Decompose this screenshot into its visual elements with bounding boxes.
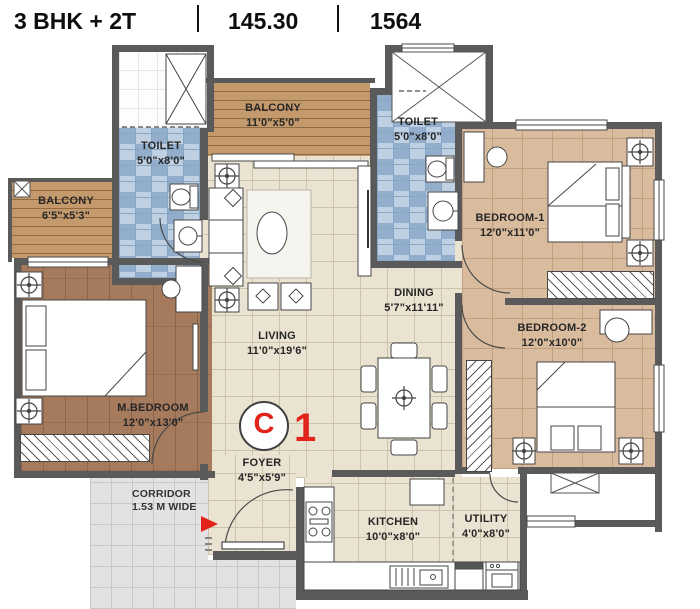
room-label-toilet-right: TOILET 5'0"x8'0" xyxy=(368,115,468,145)
room-dims: 11'0"x19'6" xyxy=(217,344,337,359)
stove-panel xyxy=(310,519,328,524)
appliance-panel xyxy=(455,562,483,569)
fridge xyxy=(410,479,444,505)
room-label-corridor: CORRIDOR 1.53 M WIDE xyxy=(132,488,242,514)
pillow xyxy=(578,426,601,450)
room-name: M.BEDROOM xyxy=(83,401,223,416)
stool xyxy=(162,280,180,298)
room-name: BALCONY xyxy=(203,101,343,116)
room-name: BEDROOM-1 xyxy=(440,211,580,226)
dining-chair xyxy=(391,343,417,358)
room-name: CORRIDOR xyxy=(132,488,242,501)
pillow xyxy=(26,350,46,390)
room-name: TOILET xyxy=(368,115,468,130)
room-name: LIVING xyxy=(217,329,337,344)
room-name: KITCHEN xyxy=(333,515,453,530)
room-name: DINING xyxy=(354,286,474,301)
room-label-master-bedroom: M.BEDROOM 12'0"x13'0" xyxy=(83,401,223,431)
bedroom-1-furniture xyxy=(464,132,653,266)
dining-chair xyxy=(432,366,447,392)
pillow xyxy=(606,204,619,236)
room-dims: 12'0"x11'0" xyxy=(440,226,580,241)
pillow xyxy=(606,168,619,200)
corridor-tick xyxy=(205,543,212,545)
basin-bowl xyxy=(179,227,197,245)
dining-furniture xyxy=(361,343,447,455)
headboard xyxy=(622,166,630,238)
dining-chair xyxy=(432,403,447,429)
room-name: BALCONY xyxy=(16,194,116,209)
washer-door xyxy=(492,574,512,587)
room-label-balcony-top: BALCONY 11'0"x5'0" xyxy=(203,101,343,131)
room-dims: 10'0"x8'0" xyxy=(333,530,453,545)
room-name: TOILET xyxy=(111,139,211,154)
room-dims: 12'0"x10'0" xyxy=(482,336,622,351)
room-dims: 4'5"x5'9" xyxy=(202,471,322,486)
room-dims: 5'0"x8'0" xyxy=(111,154,211,169)
room-dims: 5'0"x8'0" xyxy=(368,130,468,145)
coffee-table xyxy=(257,212,287,254)
room-label-balcony-left: BALCONY 6'5"x5'3" xyxy=(16,194,116,224)
room-label-toilet-left: TOILET 5'0"x8'0" xyxy=(111,139,211,169)
room-label-foyer: FOYER 4'5"x5'9" xyxy=(202,456,322,486)
wardrobe-bedroom-1 xyxy=(547,271,654,299)
tv-unit xyxy=(193,324,198,370)
room-label-bedroom-1: BEDROOM-1 12'0"x11'0" xyxy=(440,211,580,241)
unit-number: 1 xyxy=(294,408,316,448)
wardrobe-bedroom-2 xyxy=(466,360,492,472)
room-dims: 1.53 M WIDE xyxy=(132,501,242,514)
room-dims: 12'0"x13'0" xyxy=(83,416,223,431)
unit-marker-circle: C xyxy=(239,401,289,451)
pillow xyxy=(551,426,574,450)
entrance-door-leaf xyxy=(222,542,284,549)
dining-chair xyxy=(361,403,376,429)
living-furniture xyxy=(209,164,371,312)
wc-bowl xyxy=(172,189,190,205)
wardrobe-master-bedroom xyxy=(20,434,150,462)
door-arc-utility xyxy=(490,474,518,502)
room-dims: 6'5"x5'3" xyxy=(16,209,116,224)
room-dims: 11'0"x5'0" xyxy=(203,116,343,131)
room-dims: 5'7"x11'11" xyxy=(354,301,474,316)
wc-bowl xyxy=(428,161,446,177)
pillow xyxy=(26,306,46,346)
corridor-tick xyxy=(205,537,212,539)
room-label-utility: UTILITY 4'0"x8'0" xyxy=(436,512,536,542)
corridor-direction-arrow xyxy=(201,516,218,532)
corridor-tick xyxy=(205,549,212,551)
room-dims: 4'0"x8'0" xyxy=(436,527,536,542)
room-label-dining: DINING 5'7"x11'11" xyxy=(354,286,474,316)
room-name: BEDROOM-2 xyxy=(482,321,622,336)
dining-chair xyxy=(361,366,376,392)
tv-console xyxy=(358,166,371,276)
floor-plan-page: 3 BHK + 2T 145.30 1564 xyxy=(0,0,700,609)
room-label-kitchen: KITCHEN 10'0"x8'0" xyxy=(333,515,453,545)
dining-chair xyxy=(391,440,417,455)
room-name: UTILITY xyxy=(436,512,536,527)
room-label-living: LIVING 11'0"x19'6" xyxy=(217,329,337,359)
room-label-bedroom-2: BEDROOM-2 12'0"x10'0" xyxy=(482,321,622,351)
sofa xyxy=(209,188,243,286)
room-name: FOYER xyxy=(202,456,322,471)
chair xyxy=(487,147,507,167)
